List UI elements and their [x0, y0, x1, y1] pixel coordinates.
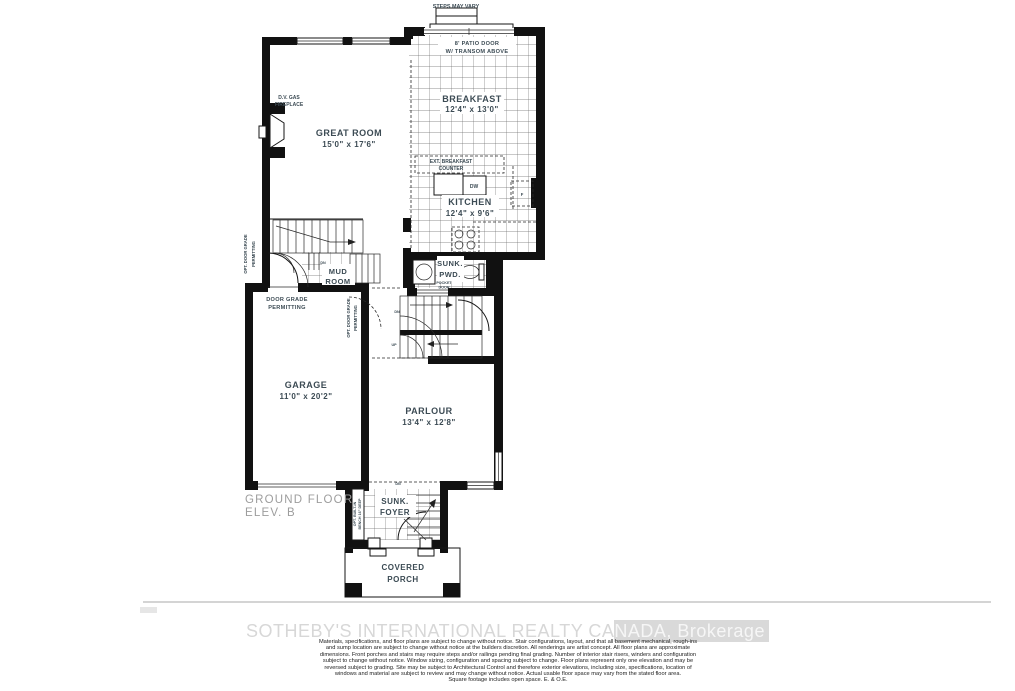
- mudroom-label-2: ROOM: [325, 277, 350, 286]
- pocket-door-label-1: POCKET: [436, 281, 452, 285]
- patio-door-label-1: 8' PATIO DOOR: [455, 41, 500, 47]
- door-grade-note-1: DOOR GRADE: [266, 297, 308, 303]
- patio-door-label-2: W/ TRANSOM ABOVE: [446, 49, 509, 55]
- porch-label-1: COVERED: [381, 563, 424, 572]
- watermark-text-left: SOTHEBY'S INTERNATIONAL REALTY CA: [246, 621, 614, 641]
- covered-porch: [345, 548, 460, 597]
- mud-dn-label: DN: [320, 261, 326, 265]
- powder-label-2: PWD.: [439, 270, 461, 279]
- entry-steps: [430, 8, 513, 31]
- opt-door-left-note-2: PERMITTING: [251, 241, 256, 267]
- ground-floor-elev: ELEV. B: [245, 507, 296, 519]
- great-room-dims: 15'0" x 17'6": [322, 140, 375, 149]
- footer-small-dash: [140, 607, 157, 613]
- foyer-dn-label: DN: [395, 482, 401, 486]
- garage-label: GARAGE: [285, 380, 328, 390]
- pocket-door-label-2: DOOR: [438, 286, 449, 290]
- great-room-label: GREAT ROOM: [316, 128, 382, 138]
- disclaimer-line: Square footage includes open space. E. &…: [8, 677, 1008, 683]
- breakfast-kitchen-tile-floor: [409, 35, 536, 252]
- parlour-label: PARLOUR: [405, 406, 452, 416]
- main-up-label: UP: [391, 343, 397, 347]
- foyer-label-2: FOYER: [380, 508, 410, 517]
- dishwasher-label: DW: [470, 184, 479, 190]
- bench-note-2: BENCH 16" DEEP: [358, 498, 362, 530]
- opt-door-left-note-1: OPT. DOOR GRADE: [243, 234, 248, 274]
- steps-note: STEPS MAY VARY: [433, 4, 480, 10]
- fireplace-label-1: D.V. GAS: [278, 95, 300, 101]
- foyer-label-1: SUNK.: [381, 497, 408, 506]
- main-dn-label: DN: [394, 310, 400, 314]
- door-grade-note-2: PERMITTING: [268, 305, 306, 311]
- powder-label-1: SUNK.: [437, 259, 463, 268]
- bench-note-1: OPT. BUILT-IN: [353, 501, 357, 526]
- disclaimer-text: Materials, specifications, and floor pla…: [8, 639, 1008, 684]
- ground-floor-label: GROUND FLOOR: [245, 494, 353, 506]
- breakfast-label: BREAKFAST: [442, 94, 502, 104]
- ext-counter-label-2: COUNTER: [439, 166, 464, 172]
- parlour-dims: 13'4" x 12'8": [402, 418, 455, 427]
- garage-dims: 11'0" x 20'2": [279, 392, 332, 401]
- fridge-label: F: [521, 192, 524, 197]
- opt-door-mid-note-2: PERMITTING: [353, 305, 358, 331]
- porch-label-2: PORCH: [387, 575, 418, 584]
- footer-divider-line: [143, 601, 991, 603]
- kitchen-dims: 12'4" x 9'6": [446, 209, 495, 218]
- kitchen-label: KITCHEN: [448, 197, 492, 207]
- ext-counter-label-1: EXT. BREAKFAST: [430, 159, 473, 165]
- floorplan-page: STEPS MAY VARY 8' PATIO DOOR W/ TRANSOM …: [0, 0, 1015, 691]
- main-stairs: [349, 288, 489, 358]
- fireplace-label-2: FIREPLACE: [275, 102, 304, 108]
- breakfast-dims: 12'4" x 13'0": [445, 105, 498, 114]
- mudroom-label-1: MUD: [329, 267, 348, 276]
- opt-door-mid-note-1: OPT. DOOR GRADE: [346, 298, 351, 338]
- floorplan-svg: STEPS MAY VARY 8' PATIO DOOR W/ TRANSOM …: [0, 0, 1015, 691]
